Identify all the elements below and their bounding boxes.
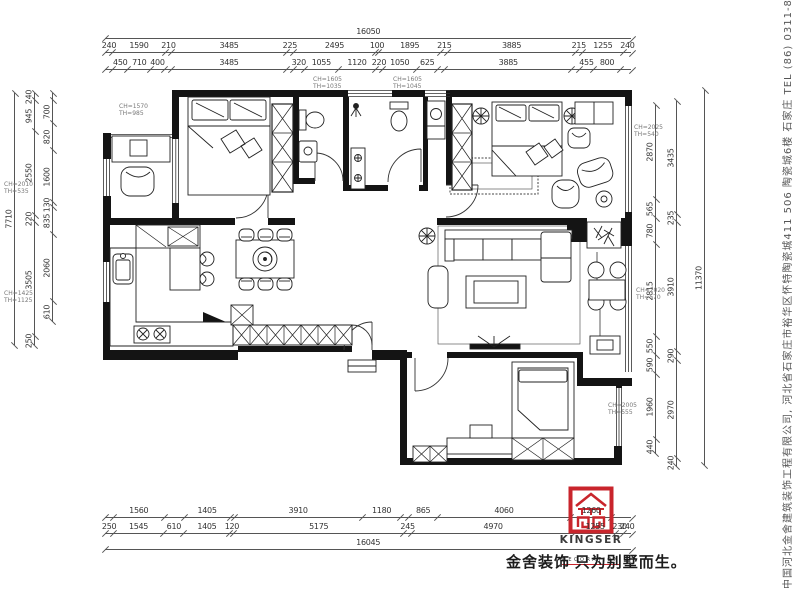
- dim-label: 250: [25, 334, 34, 348]
- furniture: [110, 97, 626, 462]
- dim-label: 3485: [219, 59, 238, 67]
- dining-chair: [239, 229, 254, 241]
- dim-label: 865: [416, 507, 430, 515]
- dim-label: 1960: [646, 397, 655, 416]
- dim-label: 3885: [502, 42, 521, 50]
- dim-segment: 11370: [704, 90, 720, 465]
- dim-label: 11370: [695, 266, 704, 290]
- pillow: [519, 370, 567, 382]
- ceiling-lamp-icon: [419, 228, 435, 244]
- dim-segment: 4060: [437, 506, 570, 518]
- dim-label: 3485: [219, 42, 238, 50]
- dim-label: 835: [43, 214, 52, 228]
- room-height-label: CH=1425TH=1125: [4, 290, 33, 304]
- dim-segment: 240: [623, 41, 631, 53]
- dim-segment: [620, 58, 631, 70]
- dim-label: 1405: [197, 523, 216, 531]
- dim-label: 3885: [499, 59, 518, 67]
- dim-label: 800: [600, 59, 614, 67]
- dim-label: 240: [620, 523, 634, 531]
- peninsula: [170, 248, 200, 290]
- dim-segment: 440: [655, 439, 671, 454]
- dim-label: 16050: [356, 28, 380, 36]
- dim-label: 710: [132, 59, 146, 67]
- sofa-seat: [454, 239, 483, 260]
- dim-segment: 5175: [234, 522, 404, 534]
- dim-segment: 455: [579, 58, 594, 70]
- dim-segment: 3435: [676, 101, 692, 214]
- dim-left-inner: 70082016001308352060610: [52, 93, 68, 322]
- dim-label: 780: [646, 224, 655, 238]
- dim-label: 240: [102, 42, 116, 50]
- dim-label: 1545: [129, 523, 148, 531]
- dim-segment: 400: [151, 58, 164, 70]
- dim-bottom-row1: 156014053910118086540601260: [105, 506, 632, 518]
- dim-segment: 240: [34, 93, 50, 101]
- dim-label: 1120: [347, 59, 366, 67]
- dim-segment: 835: [52, 207, 68, 234]
- sofa-seat: [512, 239, 541, 260]
- dim-label: 2060: [43, 258, 52, 277]
- dim-segment: 3505: [34, 222, 50, 337]
- dim-top-row2: 2401590210348522524951001895215388521512…: [105, 41, 632, 53]
- sofa-arm: [445, 239, 454, 261]
- dim-segment: 4970: [412, 522, 575, 534]
- dim-segment: 1120: [339, 58, 376, 70]
- logo-name: KINGSER: [554, 535, 628, 546]
- balcony-table: [589, 280, 625, 300]
- armchair: [552, 180, 579, 208]
- dim-label: 1560: [129, 507, 148, 515]
- dim-label: 1600: [43, 167, 52, 186]
- dim-label: 2495: [325, 42, 344, 50]
- room-height-label: CH=1605TH=1045: [393, 76, 422, 90]
- dim-segment: 1560: [113, 506, 164, 518]
- dim-segment: 820: [52, 124, 68, 151]
- room-height-label: CH=2020TH=570: [636, 287, 665, 301]
- dim-label: 2870: [646, 143, 655, 162]
- floorplan-page: 16050 2401590210348522524951001895215388…: [0, 0, 800, 593]
- balcony-chair: [588, 262, 604, 278]
- dim-label: 610: [167, 523, 181, 531]
- company-info: 中国河北金舍建筑装饰工程有限公司, 河北省石家庄市裕华区怀特陶瓷城411 506…: [779, 0, 794, 589]
- dim-segment: [572, 58, 579, 70]
- dim-label: 1050: [390, 59, 409, 67]
- shower-head: [354, 104, 359, 109]
- dim-label: 225: [283, 42, 297, 50]
- toilet-bowl: [306, 112, 324, 128]
- dim-segment: 1055: [304, 58, 339, 70]
- dim-segment: 3910: [234, 506, 362, 518]
- dim-label: 120: [225, 523, 239, 531]
- dim-segment: 3910: [676, 222, 692, 351]
- dim-bottom-row2: 25015456101405120517524549701255230240: [105, 522, 632, 534]
- dim-segment: 3885: [448, 41, 575, 53]
- chaise: [541, 232, 571, 282]
- dim-label: 1590: [129, 42, 148, 50]
- toilet-tank: [299, 110, 306, 130]
- dim-segment: 250: [34, 337, 50, 345]
- balcony-chair: [610, 262, 626, 278]
- dim-segment: 1405: [184, 506, 230, 518]
- dim-segment: 16050: [105, 27, 631, 39]
- dim-label: 1255: [586, 523, 605, 531]
- dim-bottom-total: 16045: [105, 538, 632, 550]
- chair: [568, 128, 590, 148]
- dim-label: 3910: [289, 507, 308, 515]
- dining-chair: [258, 229, 273, 241]
- dim-segment: 250: [105, 522, 113, 534]
- dim-segment: 3485: [172, 41, 286, 53]
- toilet-bowl: [391, 111, 407, 131]
- dim-label: 700: [43, 105, 52, 119]
- dim-segment: 1590: [113, 41, 165, 53]
- dim-label: 1405: [197, 507, 216, 515]
- dim-segment: 710: [128, 58, 151, 70]
- dim-label: 440: [646, 439, 655, 453]
- monitor: [130, 140, 147, 156]
- sofa-seat: [483, 239, 512, 260]
- dim-segment: 290: [676, 351, 692, 361]
- dining-chair: [239, 278, 254, 290]
- dim-segment: 235: [676, 214, 692, 222]
- dim-label: 3505: [25, 270, 34, 289]
- dim-segment: [52, 93, 68, 101]
- dim-label: 4060: [494, 507, 513, 515]
- planter: [587, 222, 621, 248]
- room-height-label: CH=1605TH=1035: [313, 76, 342, 90]
- washing-machine: [427, 101, 445, 139]
- dim-segment: 1405: [184, 522, 230, 534]
- brand-slogan: 金舍装饰 只为别墅而生。: [506, 551, 687, 572]
- side-cabinet: [428, 266, 448, 308]
- dim-segment: 1050: [383, 58, 417, 70]
- dim-label: 100: [370, 42, 384, 50]
- dim-label: 400: [150, 59, 164, 67]
- dim-right-total: 11370: [704, 90, 720, 465]
- dim-segment: 1255: [582, 41, 623, 53]
- dim-label: 5175: [309, 523, 328, 531]
- toilet-tank: [390, 102, 408, 109]
- dim-label: 215: [572, 42, 586, 50]
- dim-label: 625: [420, 59, 434, 67]
- stove: [134, 326, 170, 343]
- dim-segment: 1600: [52, 151, 68, 203]
- chair: [470, 425, 492, 438]
- dim-label: 7710: [5, 209, 14, 228]
- armchair: [575, 155, 615, 189]
- room-height-label: CH=2025TH=540: [634, 124, 663, 138]
- dim-segment: 1895: [379, 41, 441, 53]
- dim-label: 210: [161, 42, 175, 50]
- dim-segment: 1180: [362, 506, 401, 518]
- dining-chair: [277, 229, 292, 241]
- dim-label: 945: [25, 109, 34, 123]
- dim-label: 320: [292, 59, 306, 67]
- dim-label: 1180: [372, 507, 391, 515]
- dim-segment: 2970: [676, 361, 692, 459]
- dim-segment: 320: [294, 58, 304, 70]
- dim-segment: 800: [594, 58, 620, 70]
- dim-segment: 2495: [294, 41, 376, 53]
- dim-label: 1895: [400, 42, 419, 50]
- dim-segment: 610: [164, 522, 184, 534]
- dim-segment: 240: [676, 459, 692, 467]
- room-height-label: CH=2005TH=555: [608, 402, 637, 416]
- dim-segment: 700: [52, 101, 68, 124]
- dim-segment: 610: [52, 302, 68, 322]
- dim-label: 240: [667, 455, 676, 469]
- dim-label: 2970: [667, 400, 676, 419]
- dim-segment: 1545: [113, 522, 164, 534]
- desk: [447, 438, 512, 454]
- dim-label: 4970: [484, 523, 503, 531]
- dim-label: 3910: [667, 277, 676, 296]
- dim-segment: 3885: [445, 58, 572, 70]
- dim-segment: 2060: [52, 234, 68, 301]
- dim-label: 455: [579, 59, 593, 67]
- dim-label: 3435: [667, 148, 676, 167]
- dim-top-row3: 4507104003485320105511202201050625388545…: [105, 58, 632, 70]
- dim-label: 820: [43, 130, 52, 144]
- dim-segment: 450: [113, 58, 128, 70]
- dim-label: 1255: [593, 42, 612, 50]
- dim-label: 610: [43, 305, 52, 319]
- dim-label: 245: [400, 523, 414, 531]
- dim-label: 16045: [356, 539, 380, 547]
- dim-right-mid: 343523539102902970240: [676, 101, 692, 467]
- dim-label: 215: [437, 42, 451, 50]
- dim-label: 240: [620, 42, 634, 50]
- dim-label: 1055: [312, 59, 331, 67]
- dim-segment: 16045: [105, 538, 631, 550]
- dim-segment: 3485: [172, 58, 286, 70]
- dim-top-total: 16050: [105, 27, 632, 39]
- dim-label: 250: [102, 523, 116, 531]
- dim-segment: [164, 506, 184, 518]
- dim-segment: [105, 506, 113, 518]
- room-height-label: CH=2010TH=535: [4, 181, 33, 195]
- dining-chair: [277, 278, 292, 290]
- dim-label: 220: [372, 59, 386, 67]
- dining-chair: [258, 278, 273, 290]
- dim-label: 1260: [582, 507, 601, 515]
- chair: [121, 167, 154, 196]
- dim-segment: 625: [417, 58, 438, 70]
- dim-segment: 865: [409, 506, 437, 518]
- dim-label: 450: [113, 59, 127, 67]
- room-height-label: CH=1570TH=985: [119, 103, 148, 117]
